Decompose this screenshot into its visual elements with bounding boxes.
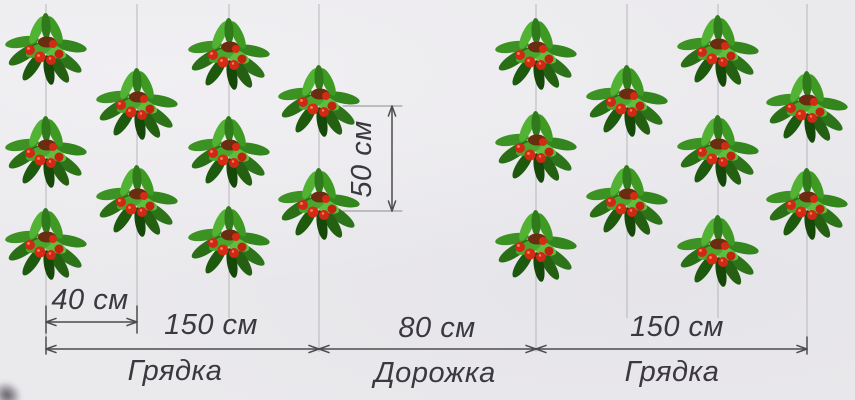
strawberry-plant-icon	[765, 168, 848, 241]
strawberry-plant-icon	[4, 208, 87, 281]
strawberry-plant-icon	[95, 68, 178, 141]
strawberry-plant-icon	[585, 65, 668, 138]
bed-name-left-label: Грядка	[110, 356, 240, 386]
strawberry-plant-icon	[4, 13, 87, 86]
strawberry-plant-icon	[676, 215, 759, 288]
strawberry-plant-icon	[676, 15, 759, 88]
strawberry-plant-icon	[187, 206, 270, 279]
path-width-label: 80 см	[377, 313, 497, 343]
strawberry-plant-icon	[187, 18, 270, 91]
strawberry-plant-icon	[585, 165, 668, 238]
strawberry-plant-icon	[494, 210, 577, 283]
bed-name-right-label: Грядка	[607, 357, 737, 387]
strawberry-plant-icon	[494, 18, 577, 91]
bed-width-left-label: 150 см	[146, 310, 276, 340]
strawberry-plant-icon	[676, 115, 759, 188]
bed-width-right-label: 150 см	[612, 312, 742, 342]
plant-spacing-label: 50 см	[347, 99, 377, 219]
strawberry-plant-icon	[95, 165, 178, 238]
planting-scheme-diagram: 40 см 50 см 150 см Грядка 80 см Дорожка …	[0, 0, 855, 400]
path-name-label: Дорожка	[363, 358, 507, 388]
row-spacing-label: 40 см	[38, 285, 142, 315]
strawberry-plant-icon	[765, 71, 848, 144]
strawberry-plant-icon	[4, 116, 87, 189]
strawberry-plant-icon	[494, 111, 577, 184]
strawberry-plant-icon	[187, 116, 270, 189]
